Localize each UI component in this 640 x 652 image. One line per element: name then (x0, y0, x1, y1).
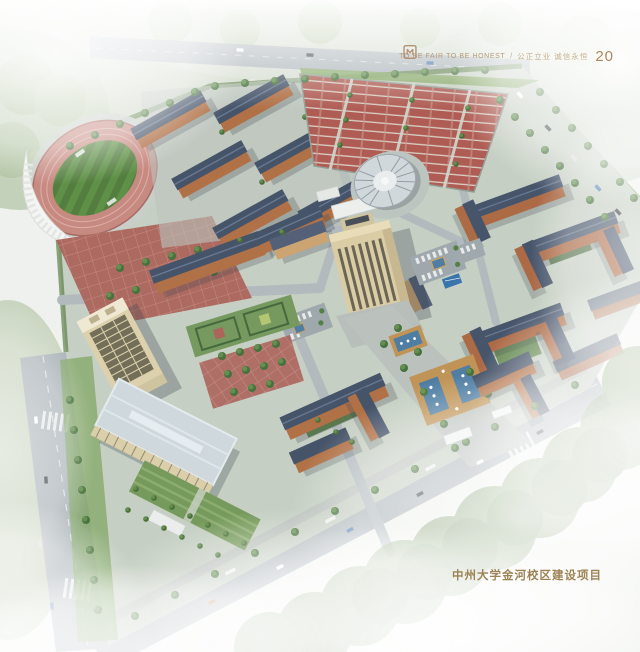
campus-rendering (0, 0, 640, 652)
slogan-divider: / (510, 53, 512, 60)
page-number: 20 (595, 48, 614, 65)
campus-rendering-page: TO BE FAIR TO BE HONEST / 公正立业 诚信永恒 20 中… (0, 0, 640, 652)
slogan-bar: TO BE FAIR TO BE HONEST / 公正立业 诚信永恒 20 (399, 44, 614, 68)
builder-logo-icon (403, 44, 417, 60)
slogan-text-zh: 公正立业 诚信永恒 (517, 51, 588, 62)
mist-overlay (0, 0, 640, 652)
project-title-caption: 中州大学金河校区建设项目 (452, 567, 602, 583)
